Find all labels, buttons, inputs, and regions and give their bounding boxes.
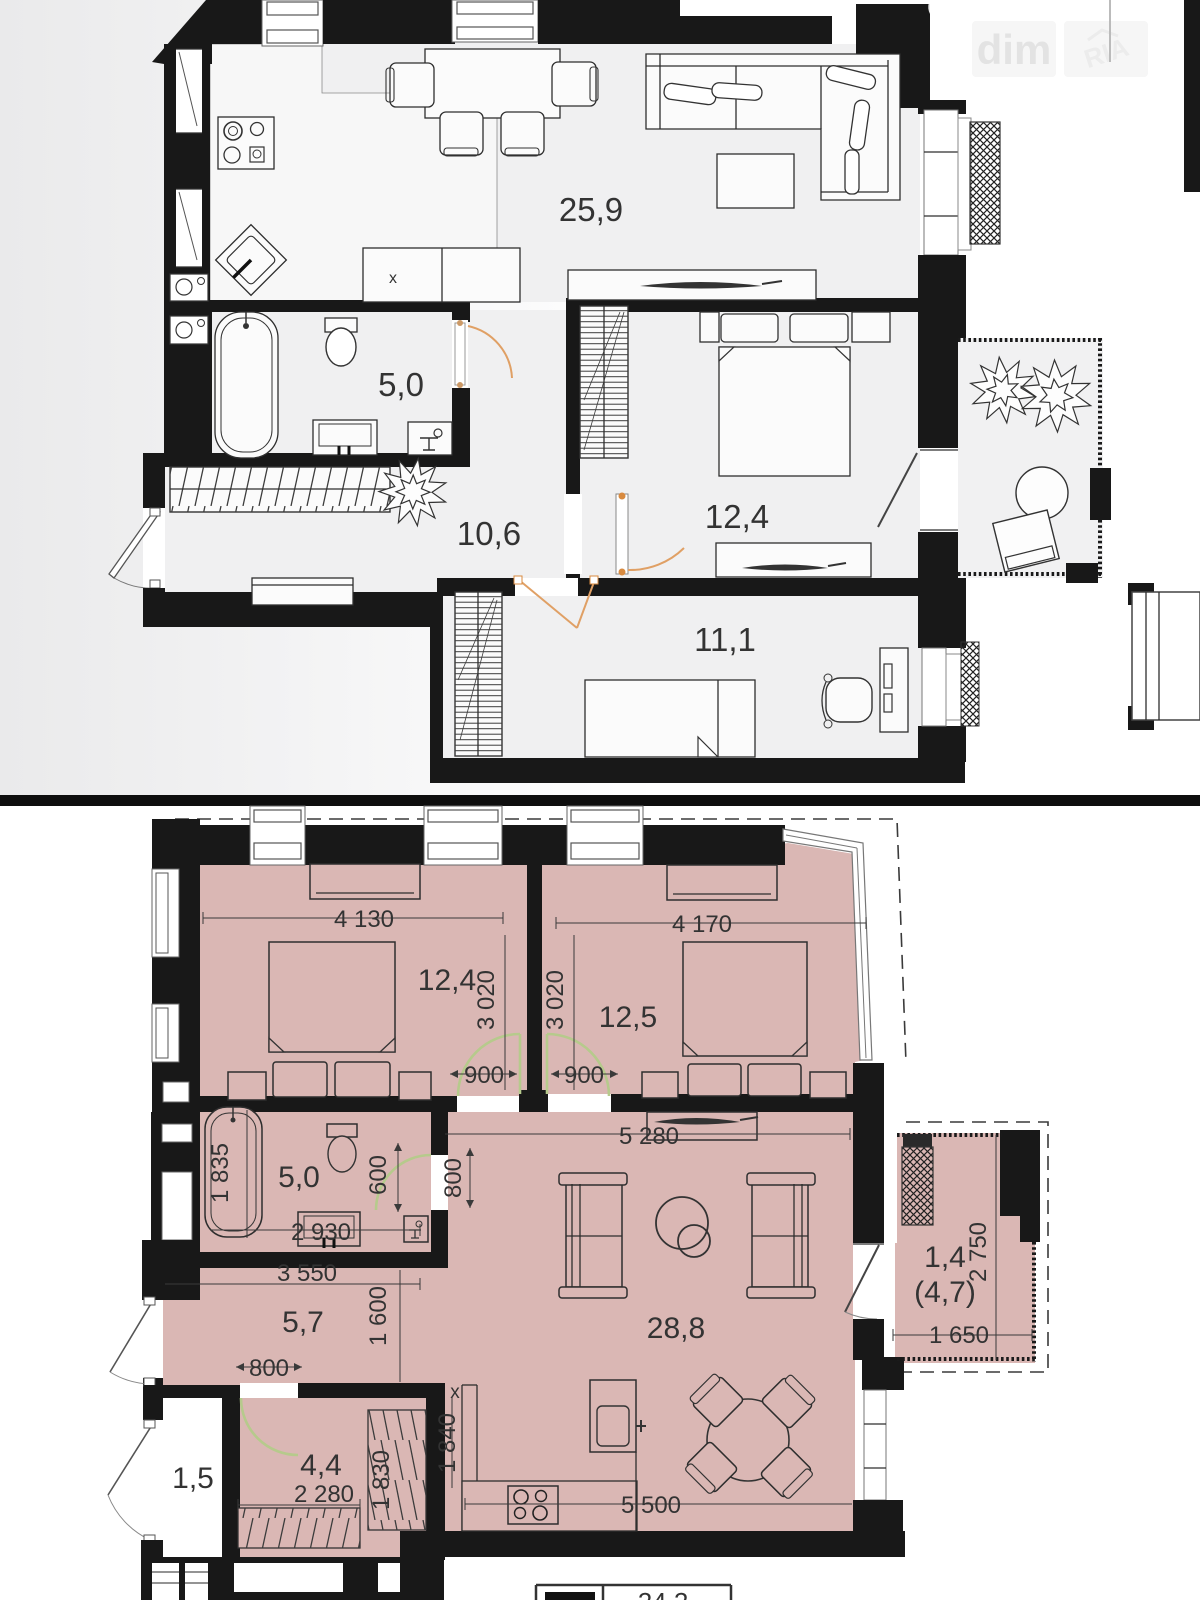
svg-text:800: 800: [440, 1158, 467, 1198]
svg-text:x: x: [450, 1382, 460, 1403]
svg-text:28,8: 28,8: [647, 1312, 705, 1345]
svg-text:600: 600: [365, 1155, 392, 1195]
svg-text:10,6: 10,6: [457, 515, 521, 552]
svg-text:12,4: 12,4: [418, 964, 476, 997]
svg-text:4 130: 4 130: [334, 906, 394, 933]
svg-text:3 020: 3 020: [473, 970, 500, 1030]
svg-text:4 170: 4 170: [672, 911, 732, 938]
svg-text:1 835: 1 835: [207, 1143, 234, 1203]
svg-text:11,1: 11,1: [694, 621, 756, 658]
svg-text:24,2: 24,2: [638, 1587, 689, 1600]
svg-text:(4,7): (4,7): [914, 1276, 976, 1309]
svg-text:5,0: 5,0: [378, 366, 424, 403]
svg-text:3 550: 3 550: [277, 1260, 337, 1287]
svg-text:4,4: 4,4: [300, 1449, 342, 1482]
svg-text:dim: dim: [977, 26, 1052, 73]
svg-text:1,5: 1,5: [172, 1462, 214, 1495]
svg-text:800: 800: [249, 1355, 289, 1382]
svg-text:900: 900: [564, 1062, 604, 1089]
svg-text:5 280: 5 280: [619, 1123, 679, 1150]
svg-text:12,5: 12,5: [599, 1001, 657, 1034]
svg-text:5,0: 5,0: [278, 1161, 320, 1194]
svg-text:2 930: 2 930: [291, 1219, 351, 1246]
svg-text:2 750: 2 750: [965, 1222, 992, 1282]
svg-text:1,4: 1,4: [924, 1241, 966, 1274]
svg-text:5 500: 5 500: [621, 1492, 681, 1519]
svg-text:900: 900: [464, 1062, 504, 1089]
svg-text:1 600: 1 600: [365, 1286, 392, 1346]
svg-text:2 280: 2 280: [294, 1481, 354, 1508]
svg-text:3 020: 3 020: [542, 970, 569, 1030]
svg-text:x: x: [389, 270, 397, 287]
svg-text:25,9: 25,9: [559, 191, 623, 228]
svg-text:5,7: 5,7: [282, 1306, 324, 1339]
svg-text:12,4: 12,4: [705, 498, 769, 535]
svg-text:1 830: 1 830: [368, 1450, 395, 1510]
svg-text:1 840: 1 840: [434, 1413, 461, 1473]
svg-text:1 650: 1 650: [929, 1322, 989, 1349]
